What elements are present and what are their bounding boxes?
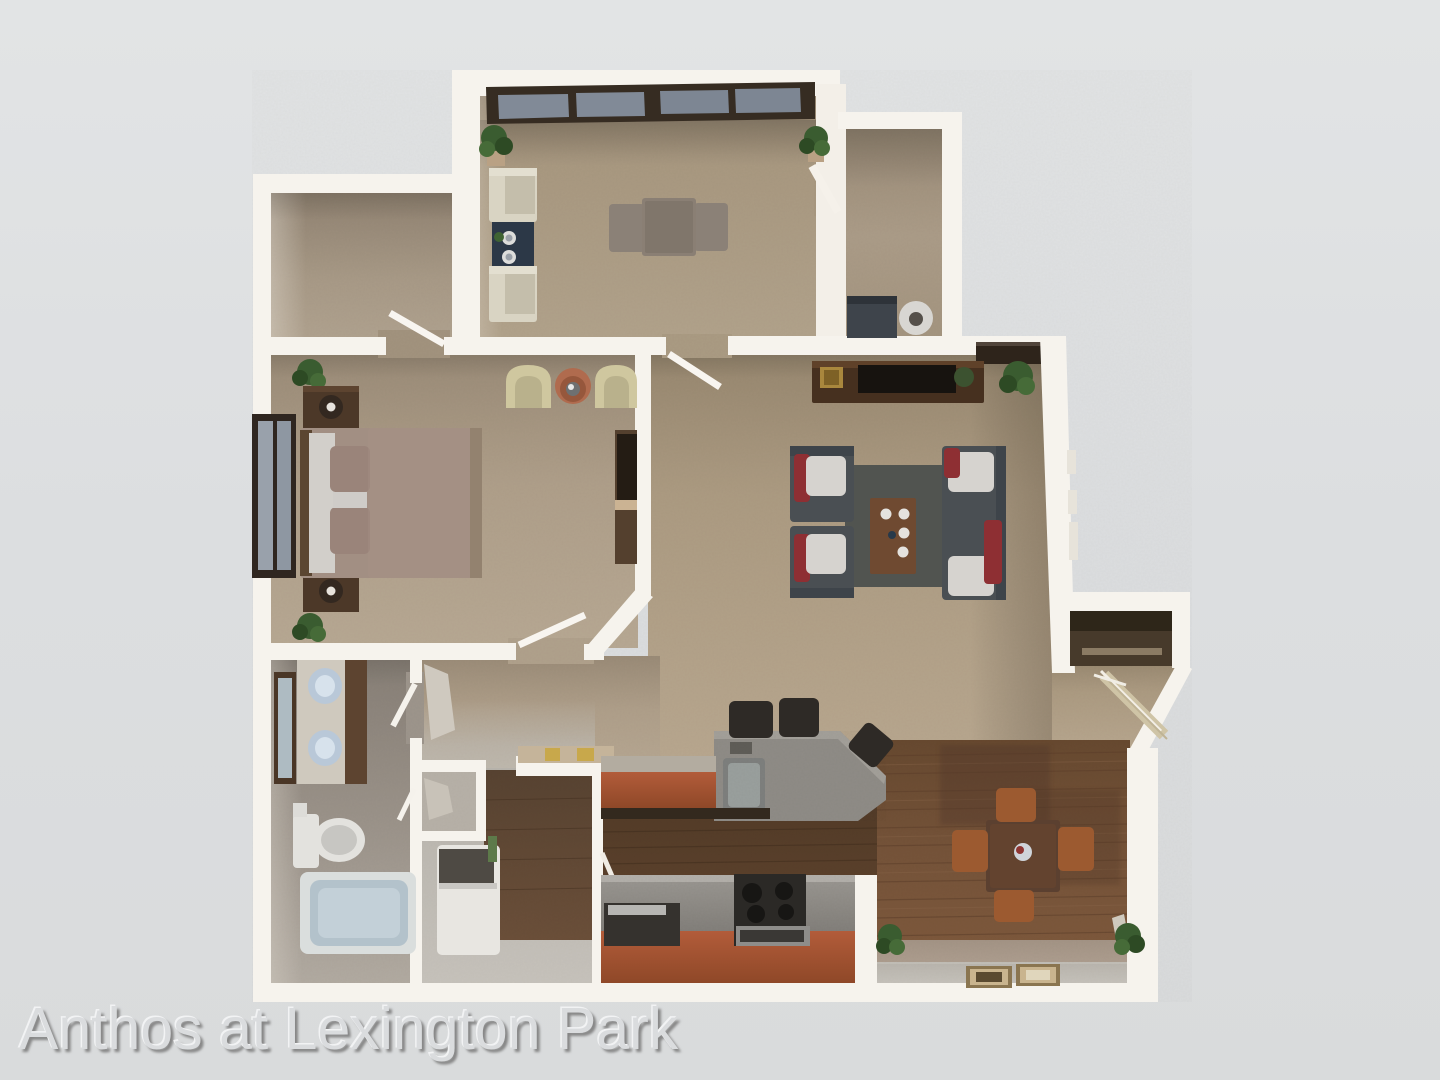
svg-text:Anthos at Lexington Park: Anthos at Lexington Park [19, 996, 679, 1062]
